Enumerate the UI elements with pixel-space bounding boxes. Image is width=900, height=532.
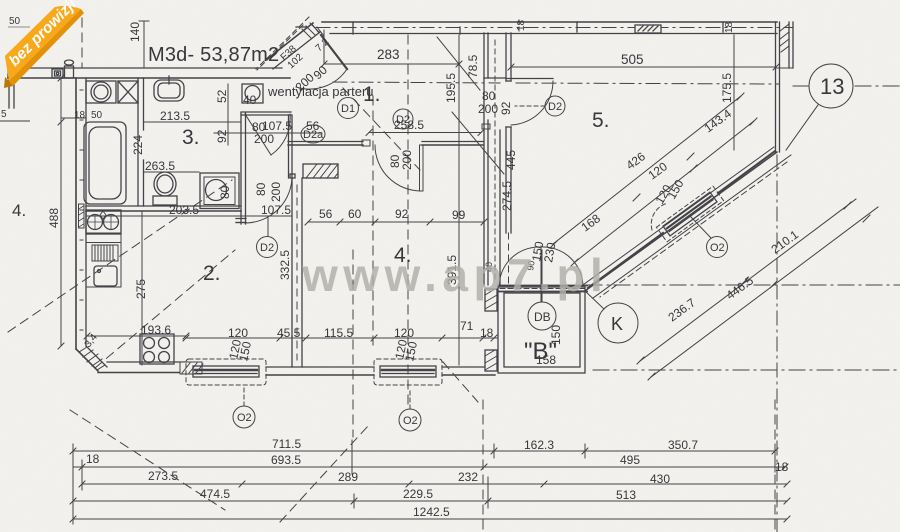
svg-text:www.ap7.pl: www.ap7.pl	[301, 249, 608, 301]
